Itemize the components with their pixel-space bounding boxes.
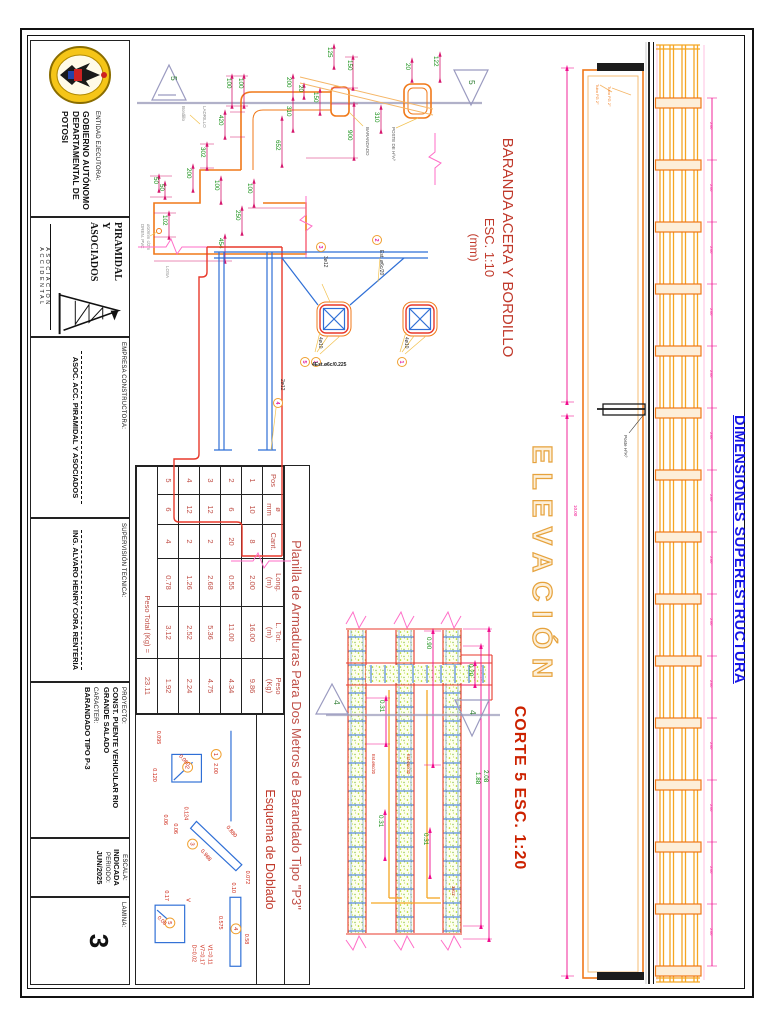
esquema-doblado-diagram: 1 2.00 2 0.095 0.120 0.060 3 0.880 0.988… — [136, 715, 256, 984]
svg-text:0.575: 0.575 — [217, 916, 223, 930]
svg-text:0.58: 0.58 — [243, 934, 249, 945]
table-row: 5640.783.121.92 — [158, 467, 179, 714]
svg-text:2.00: 2.00 — [212, 763, 218, 774]
empresa-name: ASOC. ACC. PIRAMIDAL Y ASOCIADOS — [71, 338, 80, 517]
entidad-line2: DEPARTAMENTAL DE — [70, 111, 81, 214]
entidad-label: ENTIDAD EJECUTORA: — [94, 111, 100, 214]
esquema-title: Esquema de Doblado — [256, 715, 284, 984]
signature-line — [81, 530, 82, 669]
table-row: 41221.262.522.24 — [179, 467, 200, 714]
svg-text:V1=0.11: V1=0.11 — [206, 945, 212, 965]
proyecto-line2: GRANDE SALADO — [102, 687, 111, 833]
svg-text:0.17: 0.17 — [163, 890, 169, 901]
svg-text:0.880: 0.880 — [225, 825, 238, 839]
titleblock-piramidal: PIRAMIDAL Y ASOCIADOS ASOCIACION ACCIDEN… — [30, 217, 130, 337]
svg-text:0.10: 0.10 — [230, 883, 236, 894]
esquema-section: Esquema de Doblado 1 2.00 2 0.095 0.120 … — [136, 714, 284, 984]
entidad-line3: POTOSI — [60, 111, 71, 214]
proyecto-label: PROYECTO: — [120, 687, 126, 833]
potosi-coat-of-arms-logo — [48, 43, 112, 107]
elevacion-title: ELEVACIÓN — [512, 445, 558, 630]
svg-text:0.124: 0.124 — [183, 807, 189, 821]
supervision-label: SUPERVISIÓN TECNICA: — [120, 519, 129, 681]
svg-text:0.988: 0.988 — [199, 848, 212, 862]
svg-text:0.06: 0.06 — [162, 815, 168, 826]
svg-text:0.06: 0.06 — [172, 823, 178, 834]
entidad-line1: GOBIERNO AUTÓNOMO — [81, 111, 92, 214]
periodo-label: PERIODO: — [104, 839, 110, 896]
planilla-table: Pos ømm Cant. Long.(m) L. Tot.(m) Peso(K… — [136, 466, 284, 714]
svg-text:D=0.02: D=0.02 — [191, 945, 197, 963]
proyecto-line1: CONST. PUENTE VEHICULAR RIO — [111, 687, 120, 833]
supervision-name: ING. ALVARO HENRY CORA RENTERIA — [71, 519, 80, 681]
svg-text:V: V — [185, 898, 191, 902]
titleblock-lamina: LAMINA: 3 — [30, 897, 130, 985]
titleblock-proyecto: PROYECTO: CONST. PUENTE VEHICULAR RIO GR… — [30, 682, 130, 838]
svg-text:V7=0.17: V7=0.17 — [198, 945, 204, 965]
titleblock-supervision: SUPERVISIÓN TECNICA: ING. ALVARO HENRY C… — [30, 518, 130, 682]
table-row: 11082.0016.009.86 — [242, 467, 263, 714]
peso-total-value: 23.11 — [137, 659, 158, 714]
truss-tower-logo — [55, 291, 125, 336]
piramidal-logo-subtitle: ASOCIACION ACCIDENTAL — [38, 224, 51, 330]
svg-text:1: 1 — [212, 753, 218, 756]
escala-value: INDICADA — [112, 839, 121, 896]
lamina-number: 3 — [83, 898, 114, 984]
table-row: 31222.685.364.75 — [200, 467, 221, 714]
baranda-scale: ESC. 1:10 — [481, 95, 497, 400]
periodo-value: JUN/2025 — [95, 839, 104, 896]
baranda-title-text: BARANDA ACERA Y BORDILLO — [497, 95, 516, 400]
titleblock-empresa: EMPRESA CONSTRUCTORA: ASOC. ACC. PIRAMID… — [30, 337, 130, 518]
planilla-block: Planilla de Armaduras Para Dos Metros de… — [135, 465, 310, 985]
piramidal-logo-line1: PIRAMIDAL — [111, 222, 123, 289]
signature-line — [81, 351, 82, 505]
piramidal-logo-line2: Y ASOCIADOS — [87, 222, 111, 289]
planilla-total-row: Peso Total (Kg) = 23.11 — [137, 467, 158, 714]
titleblock-escala: ESCALA: INDICADA PERIODO: JUN/2025 — [30, 838, 130, 897]
caracter-value: BARANDADO TIPO P-3 — [83, 687, 92, 833]
planilla-header-row: Pos ømm Cant. Long.(m) L. Tot.(m) Peso(K… — [263, 467, 284, 714]
svg-text:0.072: 0.072 — [244, 871, 250, 885]
escala-label: ESCALA: — [121, 839, 127, 896]
peso-total-label: Peso Total (Kg) = — [137, 467, 158, 659]
caracter-label: CARACTER: — [92, 687, 98, 833]
baranda-title: BARANDA ACERA Y BORDILLO ESC. 1:10 (mm) — [452, 95, 516, 400]
titleblock-entidad: ENTIDAD EJECUTORA: GOBIERNO AUTÓNOMO DEP… — [30, 40, 130, 217]
svg-text:0.120: 0.120 — [151, 768, 157, 782]
empresa-label: EMPRESA CONSTRUCTORA: — [120, 338, 129, 517]
lamina-label: LAMINA: — [120, 898, 129, 984]
baranda-units: (mm) — [466, 95, 481, 400]
table-row: 26200.5511.004.34 — [221, 467, 242, 714]
planilla-title: Planilla de Armaduras Para Dos Metros de… — [284, 466, 309, 984]
corte-title: CORTE 5 ESC. 1:20 — [498, 688, 528, 888]
svg-text:0.095: 0.095 — [155, 731, 161, 745]
dimensiones-superestructura-title: DIMENSIONES SUPERESTRUCTURA — [714, 415, 747, 670]
